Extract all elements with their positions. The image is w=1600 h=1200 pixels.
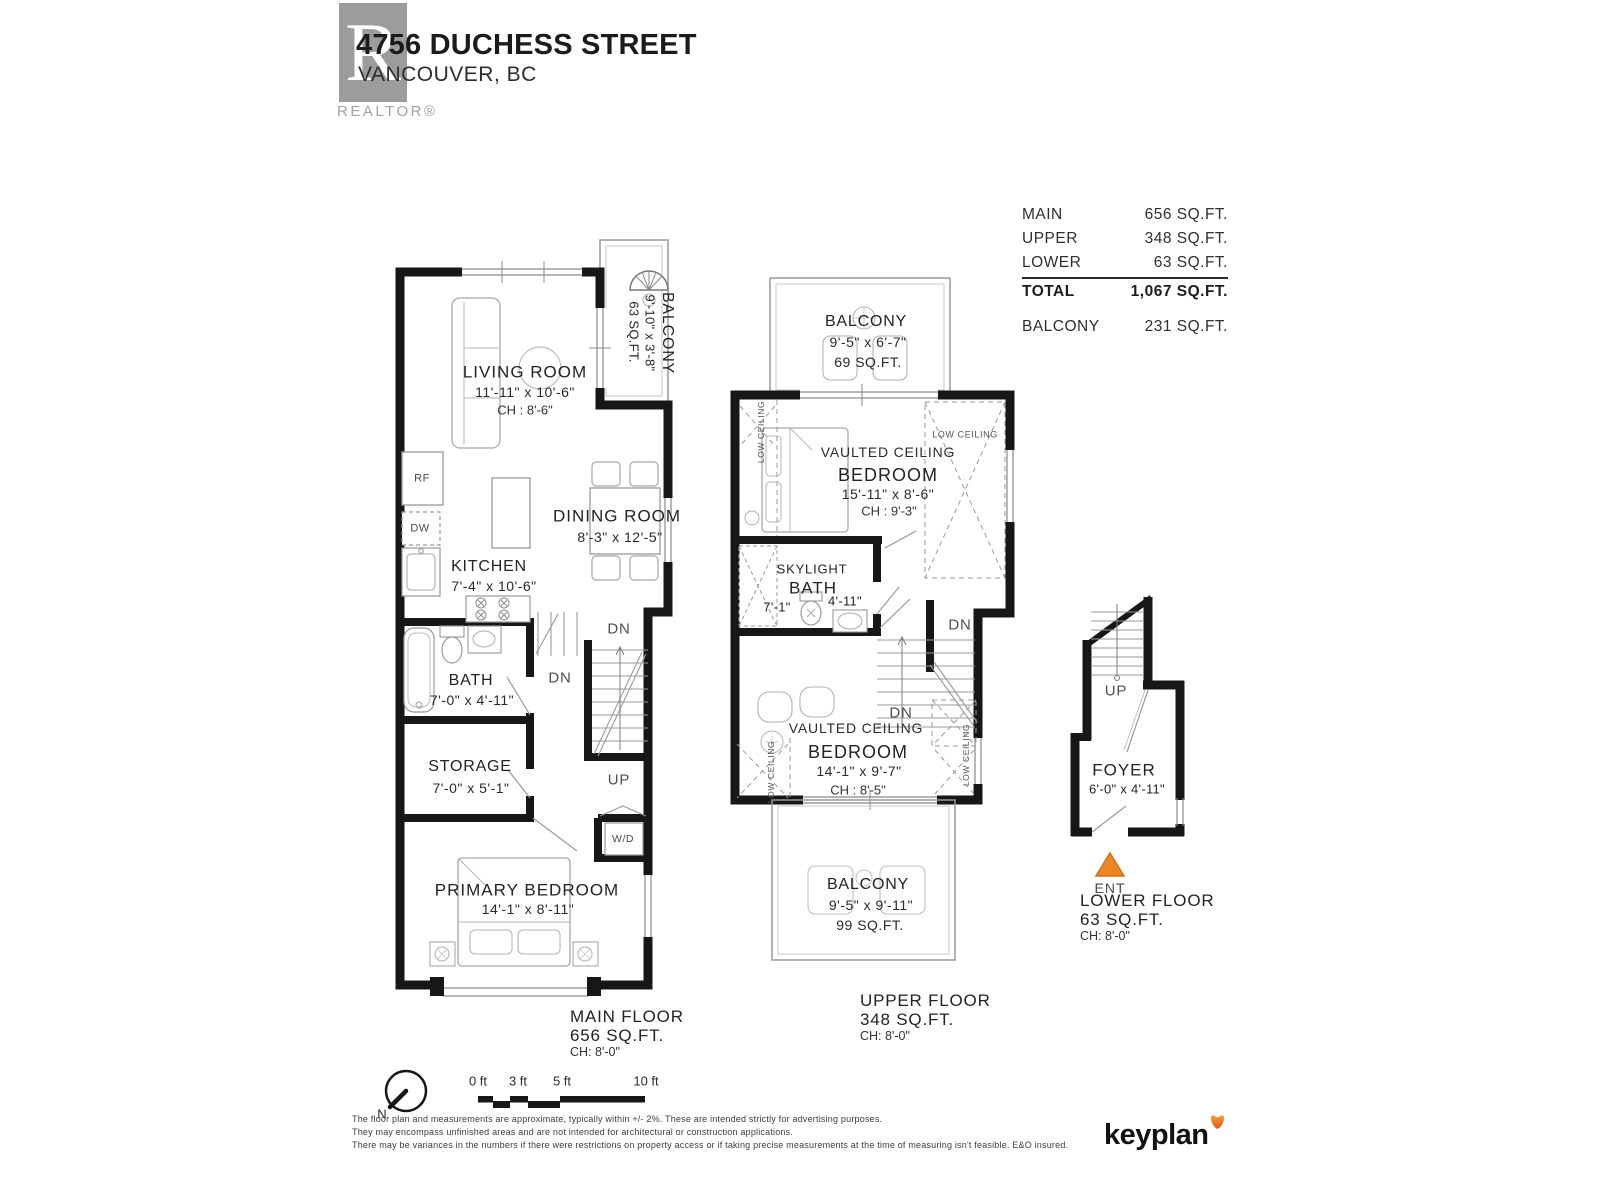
entry-marker-icon xyxy=(1096,853,1124,876)
dishwasher-label: DW xyxy=(410,524,429,535)
room-area-balcony-bottom: 99 SQ.FT. xyxy=(836,918,904,932)
low-ceiling-label-front-left: LOW CEILING xyxy=(757,401,766,463)
low-ceiling-label-back-right: LOW CEILING xyxy=(962,724,971,786)
room-dims-living: 11'-11" x 10'-6" xyxy=(475,385,575,399)
room-area-balcony-main: 63 SQ.FT. xyxy=(628,301,641,362)
room-label-foyer: FOYER xyxy=(1092,762,1156,779)
stair-up-label-lower: UP xyxy=(1105,684,1127,699)
caption-upper-floor-title: UPPER FLOOR xyxy=(860,992,991,1009)
caption-upper-floor-ch: CH: 8'-0" xyxy=(860,1030,910,1043)
page-subtitle-city: VANCOUVER, BC xyxy=(358,63,537,87)
summary-label: TOTAL xyxy=(1022,283,1075,301)
caption-main-floor-area: 656 SQ.FT. xyxy=(570,1027,664,1044)
summary-row-lower: LOWER 63 SQ.FT. xyxy=(1022,254,1228,272)
room-dims-balcony-top: 9'-5" x 6'-7" xyxy=(829,335,906,349)
room-dims-balcony-bottom: 9'-5" x 9'-11" xyxy=(829,898,913,912)
room-label-storage: STORAGE xyxy=(428,759,512,775)
room-label-balcony-top: BALCONY xyxy=(825,314,907,330)
caption-upper-floor-area: 348 SQ.FT. xyxy=(860,1011,954,1028)
upper-floor-plan-drawing xyxy=(735,278,1017,960)
room-label-living: LIVING ROOM xyxy=(463,364,587,381)
room-dims-bedroom-back: 14'-1" x 9'-7" xyxy=(816,764,901,778)
stair-dn-label-upper-1: DN xyxy=(948,618,971,633)
room-ch-bedroom-front: CH : 9'-3" xyxy=(861,505,917,518)
scale-tick-10: 10 ft xyxy=(633,1075,658,1088)
room-ch-living: CH : 8'-6" xyxy=(497,404,553,417)
scale-tick-3: 3 ft xyxy=(509,1075,527,1088)
disclaimer-line-3: There may be variances in the numbers if… xyxy=(352,1141,1068,1150)
vaulted-ceiling-label-front: VAULTED CEILING xyxy=(821,445,955,459)
low-ceiling-label-front-right: LOW CEILING xyxy=(932,431,998,440)
room-dims-bath-upper-1: 7'-1" xyxy=(763,601,790,614)
summary-label: BALCONY xyxy=(1022,318,1100,336)
summary-divider xyxy=(1022,277,1228,279)
room-label-bath-main: BATH xyxy=(449,673,494,689)
summary-label: UPPER xyxy=(1022,230,1078,248)
caption-main-floor-title: MAIN FLOOR xyxy=(570,1008,684,1025)
keyplan-fox-icon xyxy=(1211,1115,1224,1129)
room-label-primary-bedroom: PRIMARY BEDROOM xyxy=(435,882,619,899)
summary-row-total: TOTAL 1,067 SQ.FT. xyxy=(1022,283,1228,301)
room-label-dining: DINING ROOM xyxy=(553,508,681,525)
realtor-wordmark: REALTOR® xyxy=(337,103,438,120)
room-label-kitchen: KITCHEN xyxy=(451,559,527,575)
room-dims-kitchen: 7'-4" x 10'-6" xyxy=(451,579,536,593)
stair-dn-label-1: DN xyxy=(607,622,630,637)
caption-lower-floor-title: LOWER FLOOR xyxy=(1080,892,1214,909)
low-ceiling-label-back-left: LOW CEILING xyxy=(767,741,776,803)
keyplan-logo: keyplan xyxy=(1104,1119,1209,1152)
stair-dn-label-upper-2: DN xyxy=(889,706,912,721)
room-dims-dining: 8'-3" x 12'-5" xyxy=(577,530,662,544)
summary-value: 348 SQ.FT. xyxy=(1145,230,1228,248)
scale-tick-0: 0 ft xyxy=(469,1075,487,1088)
room-dims-storage: 7'-0" x 5'-1" xyxy=(432,781,509,795)
scale-tick-5: 5 ft xyxy=(553,1075,571,1088)
room-label-bedroom-front: BEDROOM xyxy=(838,466,938,484)
architecture-drawing xyxy=(0,0,1600,1200)
stair-dn-label-2: DN xyxy=(548,671,571,686)
summary-value: 656 SQ.FT. xyxy=(1145,206,1228,224)
room-label-bedroom-back: BEDROOM xyxy=(808,743,908,761)
stair-up-label: UP xyxy=(608,773,630,788)
caption-main-floor-ch: CH: 8'-0" xyxy=(570,1046,620,1059)
summary-label: LOWER xyxy=(1022,254,1081,272)
room-dims-bedroom-front: 15'-11" x 8'-6" xyxy=(842,487,935,501)
fridge-label: RF xyxy=(414,474,430,485)
vaulted-ceiling-label-back: VAULTED CEILING xyxy=(789,721,923,735)
page-title-address: 4756 DUCHESS STREET xyxy=(356,29,697,62)
north-arrow-icon xyxy=(386,1071,426,1111)
room-label-balcony-bottom: BALCONY xyxy=(827,877,909,893)
room-area-balcony-top: 69 SQ.FT. xyxy=(834,355,902,369)
summary-value: 231 SQ.FT. xyxy=(1145,318,1228,336)
room-ch-bedroom-back: CH : 8'-5" xyxy=(830,784,886,797)
caption-lower-floor-area: 63 SQ.FT. xyxy=(1080,911,1164,928)
summary-row-main: MAIN 656 SQ.FT. xyxy=(1022,206,1228,224)
room-label-balcony-main: BALCONY xyxy=(659,292,675,374)
summary-value: 1,067 SQ.FT. xyxy=(1131,283,1228,301)
room-dims-foyer: 6'-0" x 4'-11" xyxy=(1089,783,1165,796)
room-dims-bath-main: 7'-0" x 4'-11" xyxy=(430,693,514,707)
caption-lower-floor-ch: CH: 8'-0" xyxy=(1080,930,1130,943)
room-dims-balcony-main: 9'-10" x 3'-8" xyxy=(644,295,657,372)
summary-row-upper: UPPER 348 SQ.FT. xyxy=(1022,230,1228,248)
disclaimer-line-1: The floor plan and measurements are appr… xyxy=(352,1115,882,1124)
washer-dryer-label: W/D xyxy=(612,834,634,845)
room-dims-bath-upper-2: 4'-11" xyxy=(828,595,862,608)
summary-label: MAIN xyxy=(1022,206,1063,224)
floorplan-page: R 4756 DUCHESS STREET VANCOUVER, BC REAL… xyxy=(0,0,1600,1200)
disclaimer-line-2: They may encompass unfinished areas and … xyxy=(352,1128,793,1137)
summary-value: 63 SQ.FT. xyxy=(1154,254,1228,272)
summary-row-balcony: BALCONY 231 SQ.FT. xyxy=(1022,318,1228,336)
lower-floor-plan-drawing xyxy=(1071,595,1184,876)
room-dims-primary-bedroom: 14'-1" x 8'-11" xyxy=(482,902,575,916)
skylight-label: SKYLIGHT xyxy=(777,563,848,576)
scale-bar xyxy=(478,1096,645,1108)
